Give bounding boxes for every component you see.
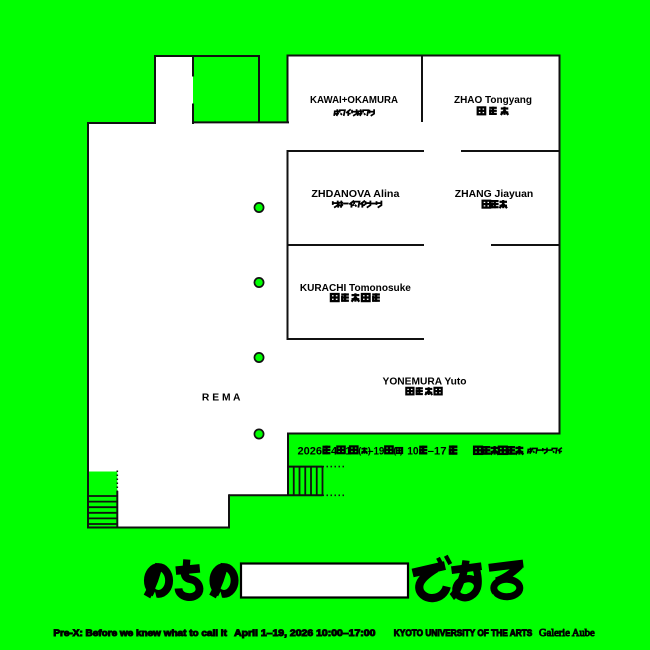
- svg-text:KURACHI Tomonosuke: KURACHI Tomonosuke: [300, 282, 411, 294]
- svg-text:2026: 2026: [298, 445, 323, 457]
- svg-text:KYOTO UNIVERSITY OF THE ARTS: KYOTO UNIVERSITY OF THE ARTS: [394, 628, 533, 639]
- svg-text:KAWAI+OKAMURA: KAWAI+OKAMURA: [310, 94, 398, 106]
- svg-text:Pre-X: Before we knew what to: Pre-X: Before we knew what to call it: [53, 628, 227, 639]
- svg-text:(: (: [358, 445, 361, 455]
- svg-text:–19: –19: [368, 445, 384, 457]
- svg-text:ZHAO Tongyang: ZHAO Tongyang: [454, 94, 532, 106]
- svg-text:ZHANG Jiayuan: ZHANG Jiayuan: [455, 188, 534, 200]
- svg-text:–17: –17: [428, 445, 447, 457]
- svg-text:YONEMURA Yuto: YONEMURA Yuto: [383, 376, 467, 388]
- svg-text:10: 10: [407, 445, 418, 457]
- svg-text:): ): [400, 445, 403, 455]
- svg-text:April 1–19, 2026 10:00–17:00: April 1–19, 2026 10:00–17:00: [234, 628, 375, 639]
- svg-text:Galerie Aube: Galerie Aube: [539, 627, 595, 639]
- svg-text:ZHDANOVA Alina: ZHDANOVA Alina: [311, 188, 399, 200]
- svg-text:R E M A: R E M A: [202, 392, 241, 403]
